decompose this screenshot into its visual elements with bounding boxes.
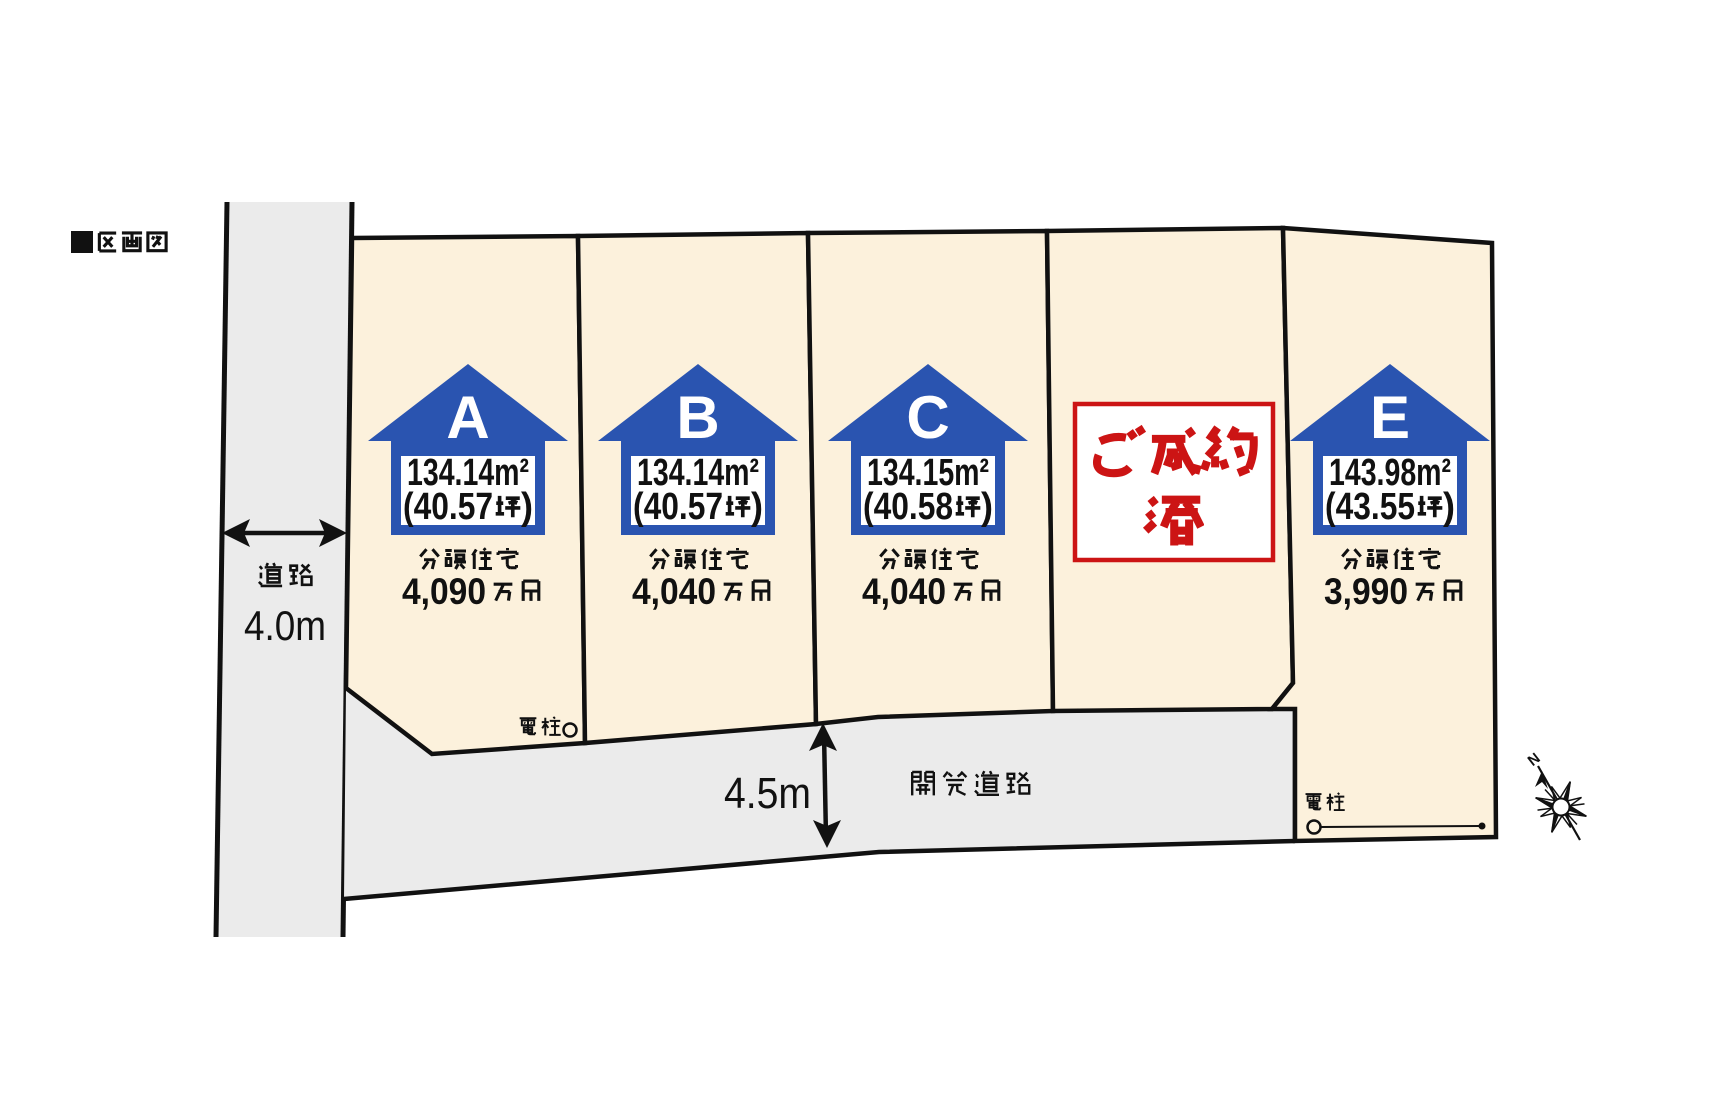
svg-text:B: B [676, 384, 719, 451]
svg-text:(43.55: (43.55 [1325, 486, 1415, 528]
svg-text:(40.58: (40.58 [863, 486, 953, 528]
svg-text:3,990: 3,990 [1324, 571, 1408, 612]
svg-text:A: A [446, 384, 489, 451]
svg-text:): ) [1443, 486, 1455, 528]
svg-text:4,090: 4,090 [402, 571, 486, 612]
svg-text:(40.57: (40.57 [403, 486, 493, 528]
svg-text:4.0m: 4.0m [244, 602, 326, 649]
svg-text:): ) [521, 486, 533, 528]
svg-text:C: C [906, 384, 949, 451]
svg-text:): ) [751, 486, 763, 528]
svg-text:4,040: 4,040 [632, 571, 716, 612]
svg-text:4,040: 4,040 [862, 571, 946, 612]
svg-text:4.5m: 4.5m [724, 769, 811, 818]
svg-text:): ) [981, 486, 993, 528]
svg-text:N: N [1525, 750, 1544, 770]
svg-text:E: E [1370, 384, 1410, 451]
svg-text:(40.57: (40.57 [633, 486, 723, 528]
